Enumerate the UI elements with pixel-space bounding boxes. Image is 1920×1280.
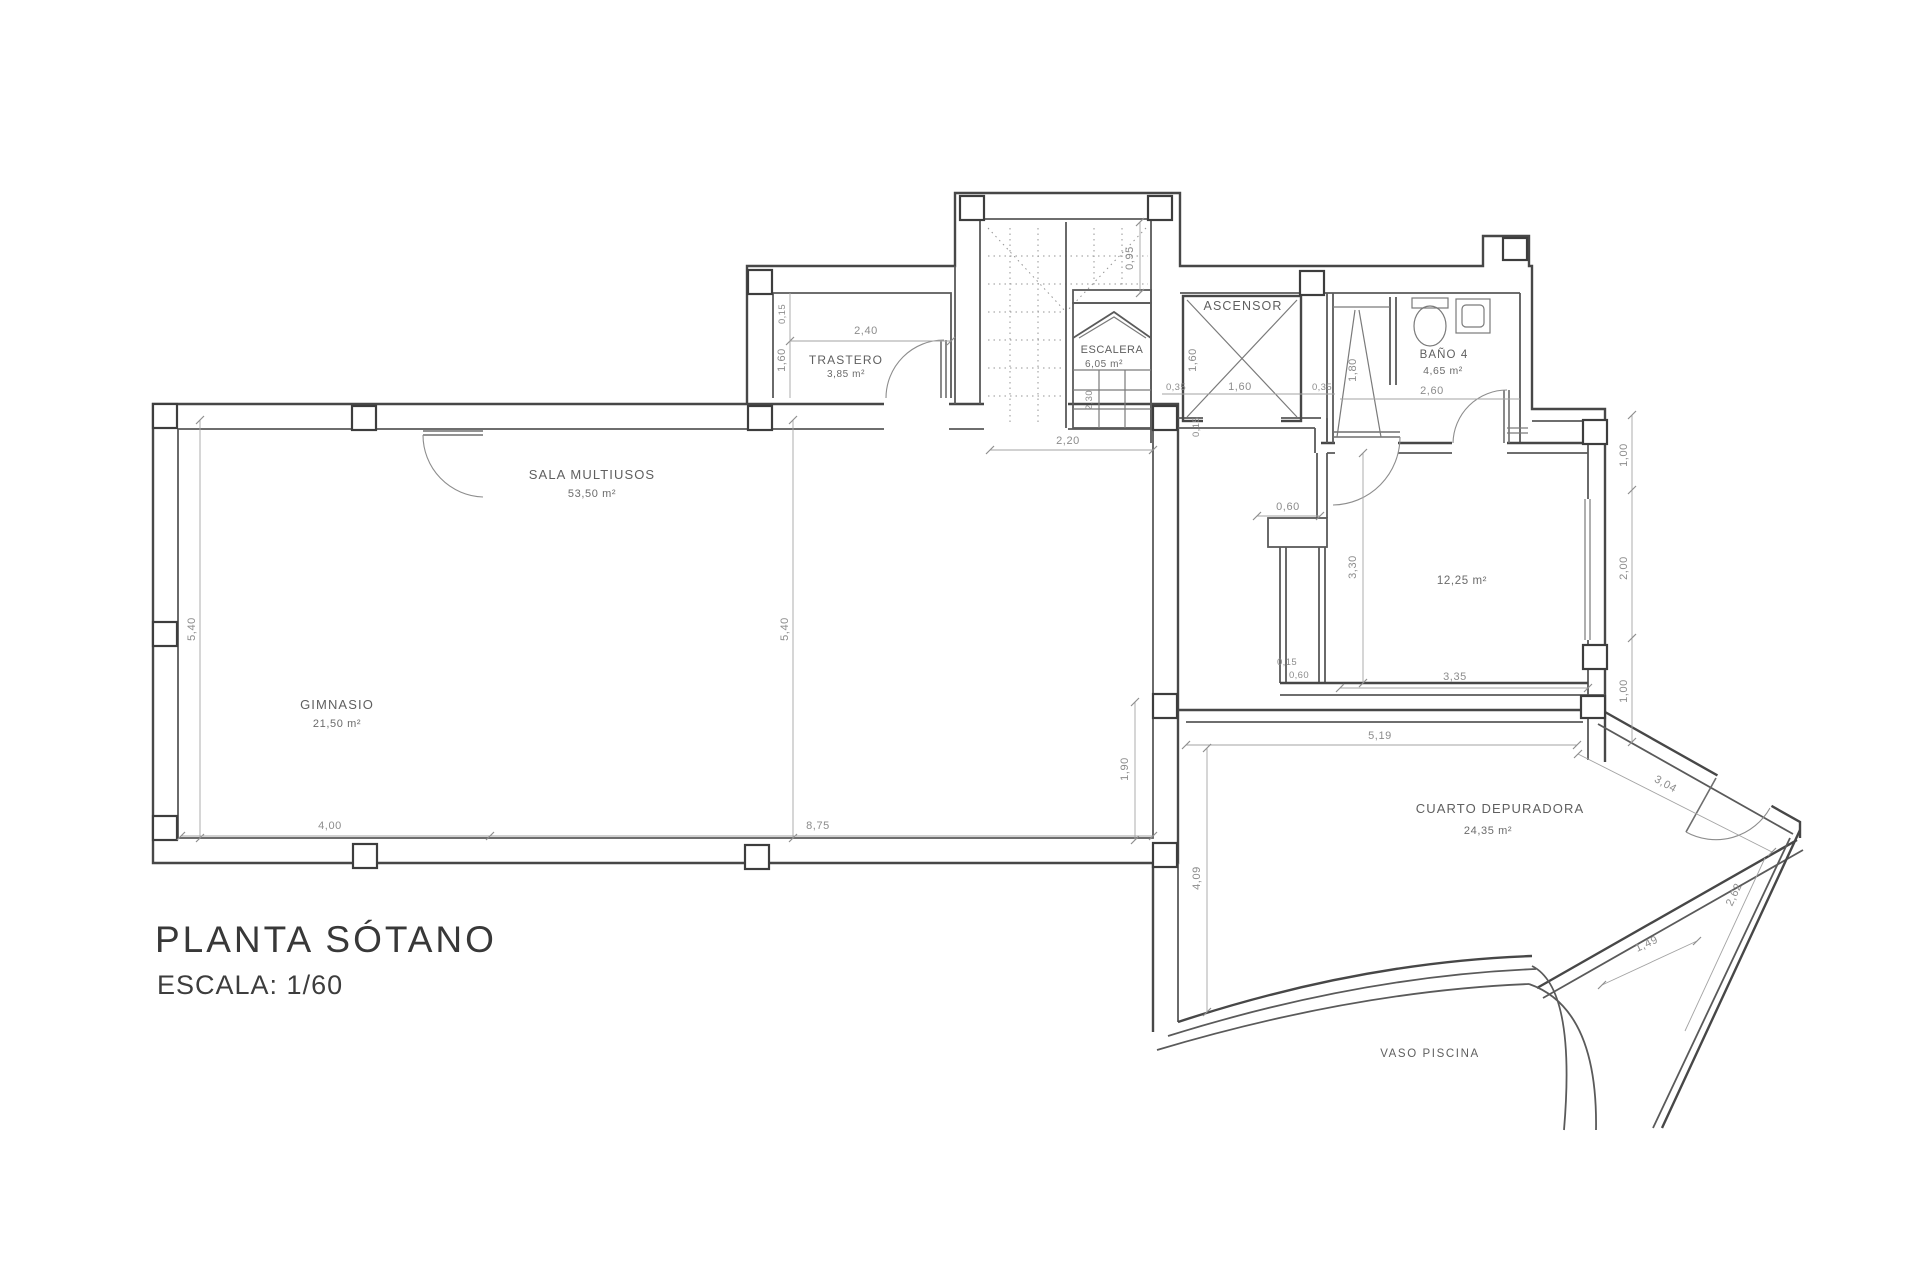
door-arc-sala: [423, 435, 483, 497]
dim-niche: 0,60: [1276, 501, 1300, 513]
page-title: PLANTA SÓTANO: [155, 919, 497, 960]
label-ascensor: ASCENSOR: [1204, 299, 1283, 313]
floor-plan-basement: 5,40 5,40 4,00 8,75 2,40 0,15 1,60 0,95 …: [0, 0, 1920, 1280]
dim-sala-height: 5,40: [779, 617, 791, 641]
dim-bano-width: 2,60: [1420, 385, 1444, 397]
dim-trastero-height: 1,60: [776, 348, 788, 372]
dimension-lines: [177, 218, 1776, 1031]
dim-shaft-b: 0,60: [1289, 670, 1309, 681]
walls: [153, 193, 1803, 1032]
dim-stair-width: 2,20: [1056, 435, 1080, 447]
dim-depuradora-height: 4,09: [1191, 866, 1203, 890]
dim-ascensor-height: 1,60: [1187, 348, 1199, 372]
dim-sala-width: 8,75: [806, 820, 830, 832]
dim-shaft-a: 0,15: [1277, 657, 1297, 668]
dim-east-2: 2,00: [1618, 556, 1630, 580]
dim-east-1: 1,00: [1618, 443, 1630, 467]
title-block: PLANTA SÓTANO ESCALA: 1/60: [155, 919, 497, 1000]
label-depuradora-area: 24,35 m²: [1464, 825, 1512, 837]
dim-sala12-height: 3,30: [1347, 555, 1359, 579]
sink-icon: [1456, 299, 1490, 333]
fixtures: [1187, 298, 1590, 640]
label-gimnasio-area: 21,50 m²: [313, 718, 361, 730]
toilet-icon: [1412, 298, 1448, 346]
dim-ascensor-small: 0,15: [1191, 417, 1202, 437]
door-arc-depuradora: [1686, 808, 1770, 840]
dim-trastero-wall: 0,15: [777, 304, 788, 324]
page-scale: ESCALA: 1/60: [157, 970, 343, 1000]
dim-ascensor-left: 0,35: [1166, 382, 1186, 393]
door-arc-bano: [1453, 390, 1507, 443]
dim-gap: 1,90: [1119, 757, 1131, 781]
elevator-cross-icon: [1187, 300, 1297, 417]
doors: [423, 340, 1770, 840]
dim-trastero-width: 2,40: [854, 325, 878, 337]
wall-openings: [884, 399, 1774, 816]
dim-stair-top: 0,95: [1124, 246, 1136, 270]
label-depuradora: CUARTO DEPURADORA: [1416, 801, 1584, 816]
dim-shower: 1,80: [1347, 358, 1359, 382]
dim-gimnasio-width: 4,00: [318, 820, 342, 832]
label-bano-area: 4,65 m²: [1423, 365, 1463, 377]
label-sala-area: 53,50 m²: [568, 488, 616, 500]
window-small: [1507, 428, 1528, 433]
shower-icon: [1333, 307, 1390, 437]
dim-depuradora-diag2: 2,62: [1724, 881, 1745, 908]
label-gimnasio: GIMNASIO: [300, 697, 374, 712]
label-trastero: TRASTERO: [809, 353, 883, 367]
label-escalera: ESCALERA: [1081, 344, 1144, 356]
label-sala12-area: 12,25 m²: [1437, 575, 1487, 587]
label-bano: BAÑO 4: [1420, 348, 1469, 361]
dim-gimnasio-height: 5,40: [186, 617, 198, 641]
columns: [153, 196, 1607, 869]
dim-depuradora-door: 1,49: [1633, 934, 1660, 955]
door-arc-trastero: [886, 340, 944, 398]
pool-walls: [1157, 830, 1800, 1130]
dim-depuradora-width: 5,19: [1368, 730, 1392, 742]
label-trastero-area: 3,85 m²: [827, 369, 865, 380]
dim-sala12-width: 3,35: [1443, 671, 1467, 683]
dim-stair-run: 2,30: [1084, 390, 1095, 410]
dim-ascensor-right: 0,35: [1312, 382, 1332, 393]
dim-depuradora-diag1: 3,04: [1652, 773, 1679, 795]
label-piscina: VASO PISCINA: [1380, 1048, 1480, 1060]
label-escalera-area: 6,05 m²: [1085, 359, 1123, 370]
dim-ascensor-door: 1,60: [1228, 381, 1252, 393]
label-sala: SALA MULTIUSOS: [529, 467, 655, 482]
dimension-labels: 5,40 5,40 4,00 8,75 2,40 0,15 1,60 0,95 …: [186, 246, 1745, 955]
dim-east-3: 1,00: [1618, 679, 1630, 703]
